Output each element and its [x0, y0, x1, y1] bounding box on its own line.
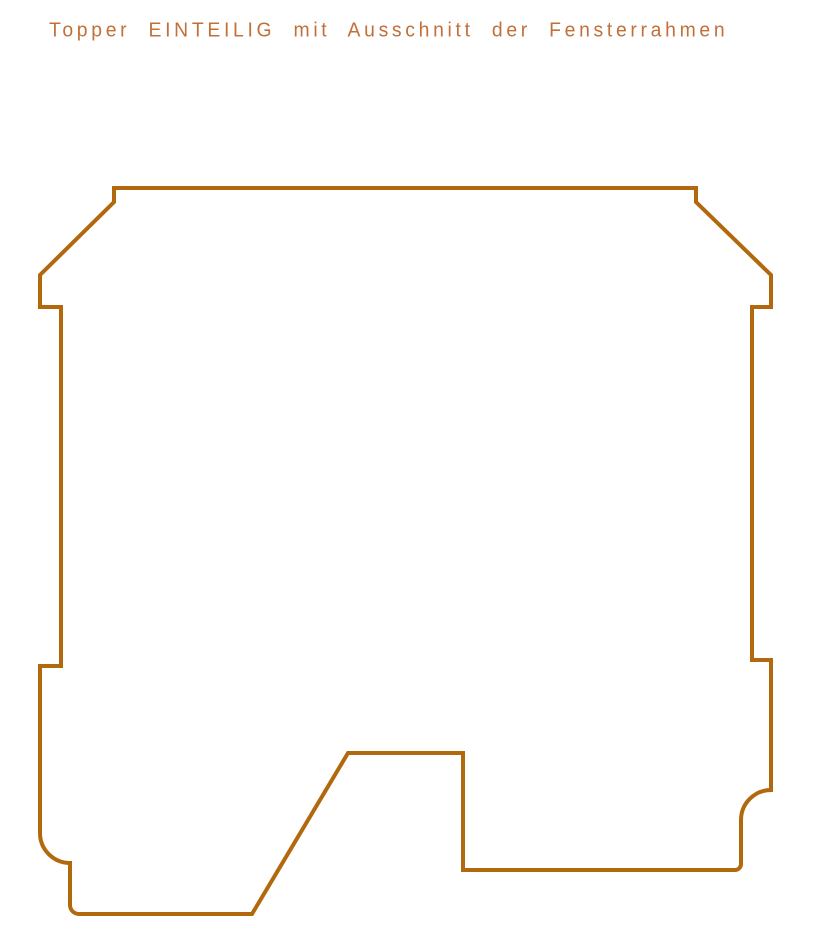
topper-outline-path [40, 188, 771, 914]
drawing-page: Topper EINTEILIG mit Ausschnitt der Fens… [0, 0, 816, 943]
topper-outline-drawing [0, 0, 816, 943]
